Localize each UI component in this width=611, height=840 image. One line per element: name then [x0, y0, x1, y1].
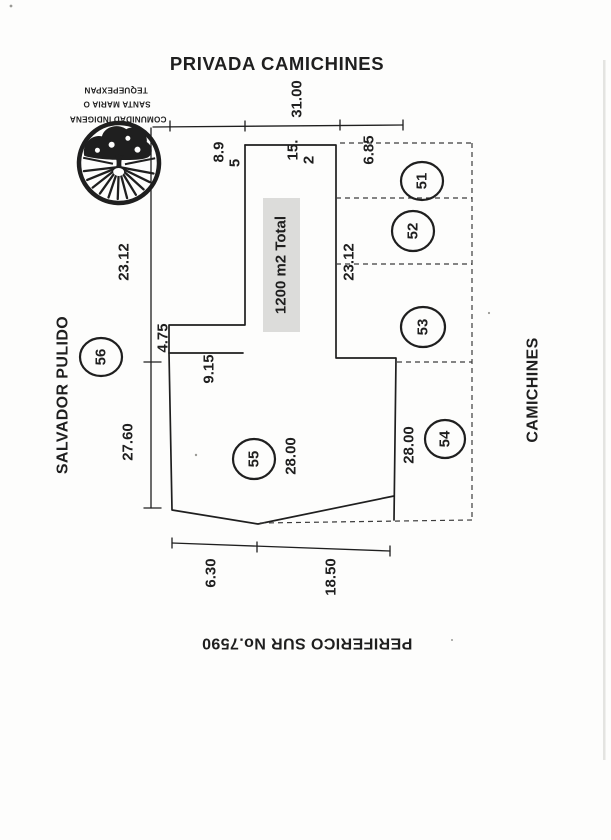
bottom-dimension-line: [172, 538, 390, 556]
street-label-bottom: PERIFERICO SUR No.7590: [202, 635, 413, 652]
plot-plan-drawing: PRIVADA CAMICHINES SALVADOR PULIDO CAMIC…: [0, 0, 611, 840]
lot-marker-51: 51: [401, 162, 443, 200]
lot-marker-54: 54: [425, 420, 465, 458]
dim-top-mid-line2: 2: [301, 156, 318, 164]
dim-top-total: 31.00: [289, 80, 306, 118]
street-label-top: PRIVADA CAMICHINES: [170, 53, 384, 74]
lot-number-56: 56: [93, 349, 110, 366]
lot-number-54: 54: [437, 430, 454, 447]
dim-left-upper: 23.12: [116, 243, 133, 281]
dim-lot55-depth: 28.00: [283, 437, 300, 475]
area-total-text: 1200 m2 Total: [273, 216, 290, 314]
lot-marker-55: 55: [233, 439, 275, 479]
lot-number-53: 53: [415, 319, 432, 336]
dim-bottom-left: 6.30: [203, 558, 220, 587]
stamp-text-line2: SANTA MARIA O: [83, 100, 151, 109]
dim-left-lower: 27.60: [120, 423, 137, 461]
lot-number-55: 55: [246, 451, 263, 468]
area-total-label: 1200 m2 Total: [263, 198, 300, 332]
community-seal-stamp: COMUNIDAD INDIGENA SANTA MARIA O TEQUEPE…: [70, 86, 167, 205]
dim-top-mid-line1: 15.: [285, 140, 302, 161]
lot-marker-56: 56: [80, 338, 122, 376]
dim-lot54-depth: 28.00: [401, 426, 418, 464]
dim-east: 23.12: [341, 243, 358, 281]
dim-step-height: 4.75: [155, 323, 172, 352]
dim-bottom-right: 18.50: [323, 558, 340, 596]
top-dimension-line: [153, 120, 403, 131]
dim-top-left-line1: 8.9: [211, 142, 228, 163]
stamp-text-line3: TEQUEPEXPAN: [84, 86, 147, 95]
lot-marker-52: 52: [392, 211, 434, 251]
dim-step-width: 9.15: [201, 354, 218, 383]
lot-number-52: 52: [405, 223, 422, 240]
dim-top-right: 6.85: [361, 135, 378, 164]
street-label-left: SALVADOR PULIDO: [55, 316, 72, 474]
tree-seal-icon: [78, 122, 161, 205]
lot-number-51: 51: [414, 173, 431, 190]
street-label-right: CAMICHINES: [525, 337, 542, 442]
lot-marker-53: 53: [401, 307, 445, 347]
dim-top-left-line2: 5: [227, 159, 244, 167]
